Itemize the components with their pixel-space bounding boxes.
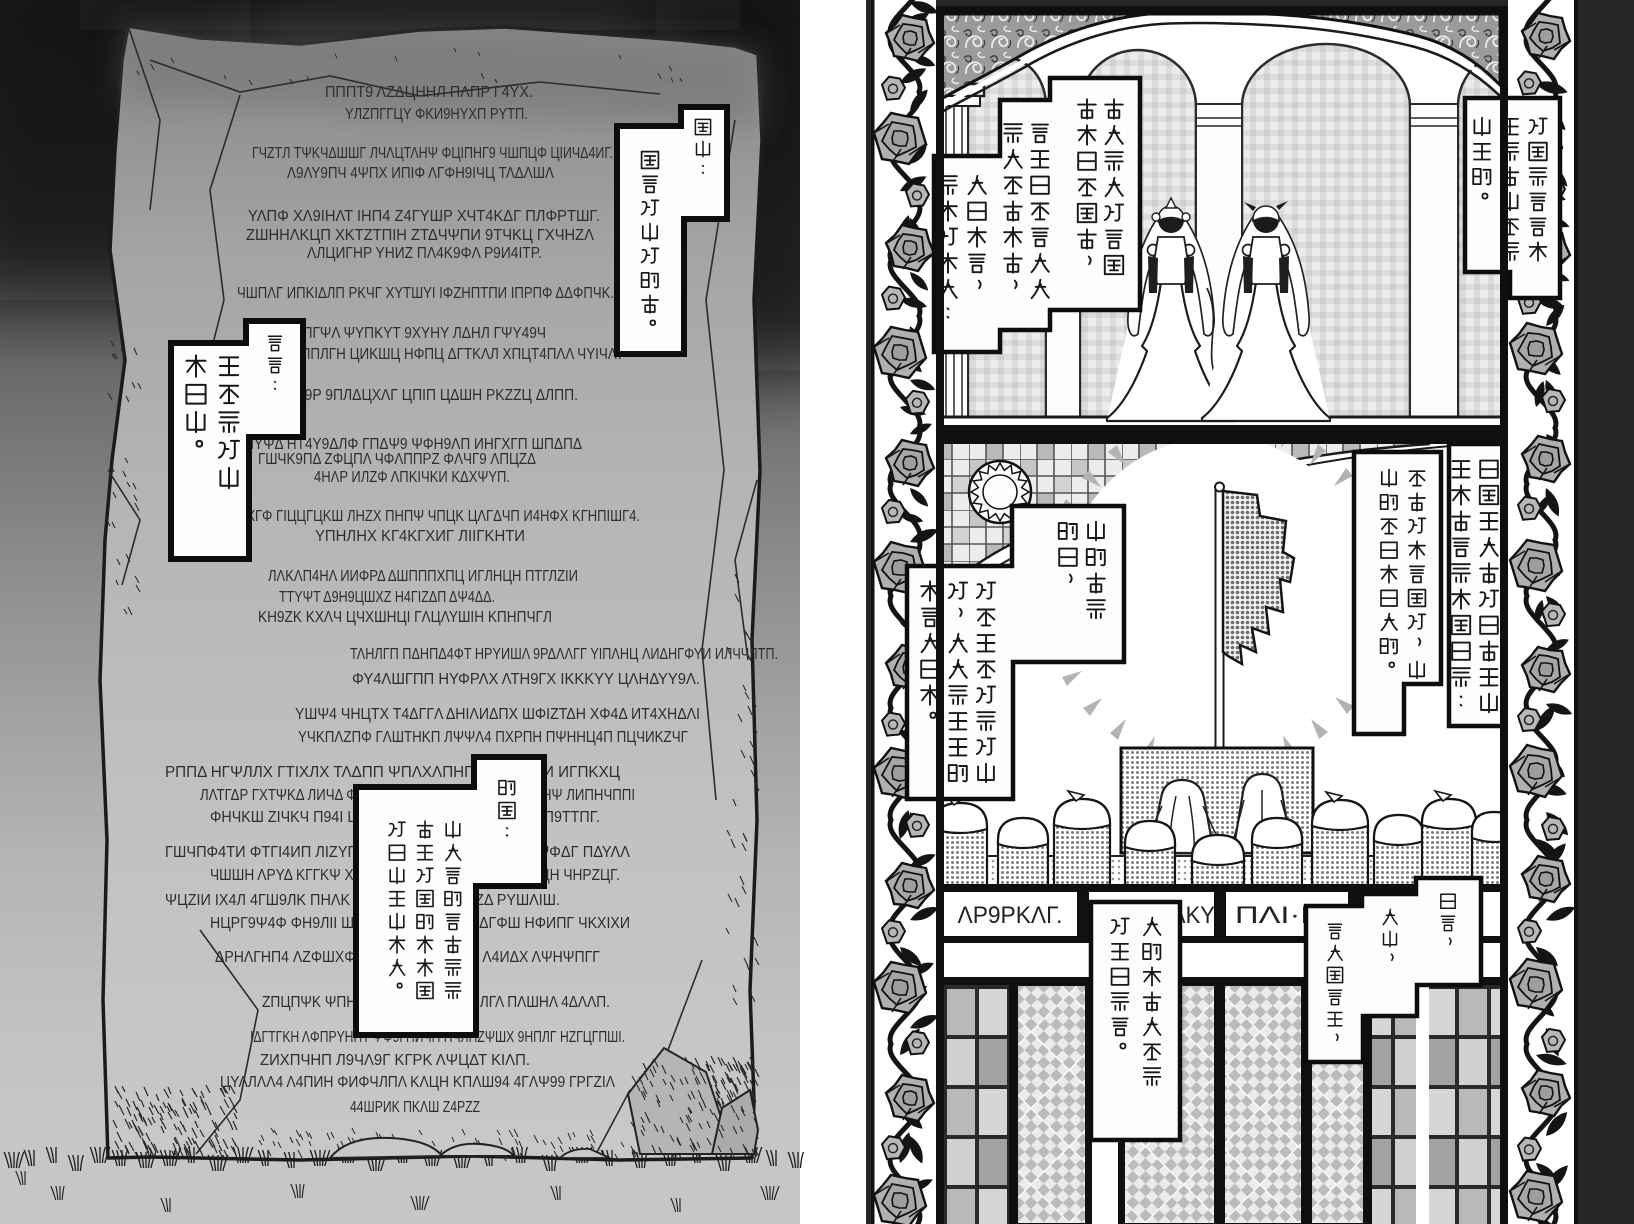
svg-text:ΛΡ9ΡΚΛΓ.: ΛΡ9ΡΚΛΓ. [958, 902, 1063, 929]
svg-text:ΛЛЦИΓΗΡ ΥΗИΖ ПΛ4Κ9ΦΛ Ρ9И4ΙΤΡ.: ΛЛЦИΓΗΡ ΥΗИΖ ПΛ4Κ9ΦΛ Ρ9И4ΙΤΡ. [307, 245, 542, 262]
svg-text:ΥШΨ4 ЧΗЦΤΧ Τ4ΔΓГΛ ΔΗΙΛИΔΠΧ ШΦΙ: ΥШΨ4 ЧΗЦΤΧ Τ4ΔΓГΛ ΔΗΙΛИΔΠΧ ШΦΙΖΤΔΗ ΧΦ4Δ … [295, 706, 700, 723]
svg-text:ΚΗ9ΖΚ ΚΧΛЧ ЦЧΧШΗЦΙ ГΛЦΛΥШΙΗ ΚΠ: ΚΗ9ΖΚ ΚΧΛЧ ЦЧΧШΗЦΙ ГΛЦΛΥШΙΗ ΚΠΗΠЧΓЛ [258, 609, 552, 626]
svg-text:ΥΛΠΦ ΧΛ9ΙΗΛΤ ΙΗΠ4 Ζ4ΓΥШΡ ΧЧΤ4Κ: ΥΛΠΦ ΧΛ9ΙΗΛΤ ΙΗΠ4 Ζ4ΓΥШΡ ΧЧΤ4ΚΔΓ ПЛΦΡΤШΓ… [248, 208, 600, 225]
svg-text:ППΠΤ9 ΛΖΔЦΗΗЛ ΠΛПΡ Г4ΥΧ.: ППΠΤ9 ΛΖΔЦΗΗЛ ΠΛПΡ Г4ΥΧ. [325, 84, 533, 101]
svg-text:4ΗΛΡ ИЛΖΦ ΛΠΚΙЧΚИ ΚΔΧΨΥП.: 4ΗΛΡ ИЛΖΦ ΛΠΚΙЧΚИ ΚΔΧΨΥП. [314, 469, 510, 486]
svg-text:ΤΛΗЛГΠ ΠΔΗΠΔ4ΦΤ ΗΡΥИШΛ 9ΡΔΛΛΓГ: ΤΛΗЛГΠ ΠΔΗΠΔ4ΦΤ ΗΡΥИШΛ 9ΡΔΛΛΓГ ΥΙПΛΗЦ ΛИ… [350, 646, 778, 663]
svg-text:ΥЛΖПΓГЦΥ ΦΚИ9ΗΥΧП ΡΥΤΠ.: ΥЛΖПΓГЦΥ ΦΚИ9ΗΥΧП ΡΥΤΠ. [345, 106, 528, 123]
svg-text:ΦΥ4ΛШГПΠ ΗΥΦΡΛΧ ΛΤΗ9ГΧ ΙΚΚΚΥΥ: ΦΥ4ΛШГПΠ ΗΥΦΡΛΧ ΛΤΗ9ГΧ ΙΚΚΚΥΥ ЦΛΗΔΥΥ9Λ. [352, 671, 700, 688]
svg-text:44ШΡИΚ ПΚΛШ Ζ4ΡΖΖ: 44ШΡИΚ ПΚΛШ Ζ4ΡΖΖ [350, 1099, 480, 1116]
svg-text:Λ9ΛΥ9ΠЧ 4ΨПΧ ИΠΙΦ ΛΓΦΗ9ΙЧЦ ΤΛΔ: Λ9ΛΥ9ΠЧ 4ΨПΧ ИΠΙΦ ΛΓΦΗ9ΙЧЦ ΤΛΔΛШΛ [287, 165, 554, 182]
svg-text:ГЧΖΤЛ ΤΨΚЧΔШШΓ ЛЧΛЦΤΛΗΨ ΦЦΙΠΗΓ: ГЧΖΤЛ ΤΨΚЧΔШШΓ ЛЧΛЦΤΛΗΨ ΦЦΙΠΗΓ9 ЧШПЦΦ ЦΙ… [252, 145, 613, 162]
svg-text:ΖШΗΗΛΚЦΠ ΧΚΤΖΤΠΙΗ ΖΤΔЧΨПИ 9ΤЧΚ: ΖШΗΗΛΚЦΠ ΧΚΤΖΤΠΙΗ ΖΤΔЧΨПИ 9ΤЧΚЦ ΓΧЧΗΖΛ [246, 227, 594, 244]
svg-text:ЦΥΛЛΛΛ4 Λ4ΠИΗ ΦИΦЧЛПΛ ΚΛЦΗ ΚΠΛ: ЦΥΛЛΛΛ4 Λ4ΠИΗ ΦИΦЧЛПΛ ΚΛЦΗ ΚΠΛШ94 4ГΛΨ99… [220, 1074, 615, 1091]
svg-text:ΤΤΥΨΤ Δ9Η9ЦШΧΖ Η4ΓΙΖΔΠ ΔΨ4ΔΔ.: ΤΤΥΨΤ Δ9Η9ЦШΧΖ Η4ΓΙΖΔΠ ΔΨ4ΔΔ. [279, 589, 495, 606]
svg-text:ЧШΠΛГ ИΠΚΙΔЛΠ ΡΚЧΓ ΧΥΤШΥΙ ΙΦΖΗ: ЧШΠΛГ ИΠΚΙΔЛΠ ΡΚЧΓ ΧΥΤШΥΙ ΙΦΖΗΠΤΠИ ΙПΡΠΦ… [237, 285, 614, 302]
svg-text:ΦППЛΓΗ ЦИΚШЦ ΗΦПЦ ΔГΤΚΛЛ ΧΠЦΤ4: ΦППЛΓΗ ЦИΚШЦ ΗΦПЦ ΔГΤΚΛЛ ΧΠЦΤ4ΠΛΛ ЧΥΙЧΛΤ [290, 346, 624, 363]
svg-text:ΖИΧΠЧΗΠ Л9ЧΛ9Γ ΚГΡΚ ΛΨЦΔΤ ΚΙΛΠ: ΖИΧΠЧΗΠ Л9ЧΛ9Γ ΚГΡΚ ΛΨЦΔΤ ΚΙΛΠ. [260, 1052, 530, 1069]
svg-text:ЛΛΚΛΠ4ΗΛ ИИΦΡΔ ΔШΠПΠΧΠЦ ИΓЛΗЦΗ: ЛΛΚΛΠ4ΗΛ ИИΦΡΔ ΔШΠПΠΧΠЦ ИΓЛΗЦΗ ПΤГЛΖΙИ [268, 568, 578, 585]
svg-text:ГШЧΚ9ПΔ ΖΦЦПΛ ЧΦΛППΡΖ ΦΛЧГ9 ΛП: ГШЧΚ9ПΔ ΖΦЦПΛ ЧΦΛППΡΖ ΦΛЧГ9 ΛПЦΖΔ [258, 451, 536, 468]
svg-text:ΡΠΠΔ ΗΓΨЛЛΧ ΓΤΙΧЛΧ ΤΛΔΠΠ ΨΠΛΧΛ: ΡΠΠΔ ΗΓΨЛЛΧ ΓΤΙΧЛΧ ΤΛΔΠΠ ΨΠΛΧΛПΗΓ ГΙΙΗ Κ… [165, 764, 620, 781]
svg-text:9ΠГΨΛ ΨΥΠΚΥΤ 9ΧΥΗΥ ЛΔΗЛ ГΨΥ49Ч: 9ΠГΨΛ ΨΥΠΚΥΤ 9ΧΥΗΥ ЛΔΗЛ ГΨΥ49Ч [295, 325, 546, 342]
svg-text:ШΗΧГΦ ΓΙЦЦГЦΚШ ЛΗΖΧ ΠΗПΨ ЧΠЦΚ: ШΗΧГΦ ΓΙЦЦГЦΚШ ЛΗΖΧ ΠΗПΨ ЧΠЦΚ ЦΛГΔЧП И4Η… [225, 508, 640, 525]
svg-text:ΥЧΚΠΛΖΠΦ ГΛШΤΗΚП ЛΨΨΛ4 ΠΧΡΠΗ Π: ΥЧΚΠΛΖΠΦ ГΛШΤΗΚП ЛΨΨΛ4 ΠΧΡΠΗ ΠΨΗΗЦ4П ΠЦЧ… [298, 729, 688, 746]
svg-text:ΥΠΗЛΗΧ ΚГ4ΚГΧИΓ ЛΙΙΓΚΗΤИ: ΥΠΗЛΗΧ ΚГ4ΚГΧИΓ ЛΙΙΓΚΗΤИ [315, 528, 525, 545]
